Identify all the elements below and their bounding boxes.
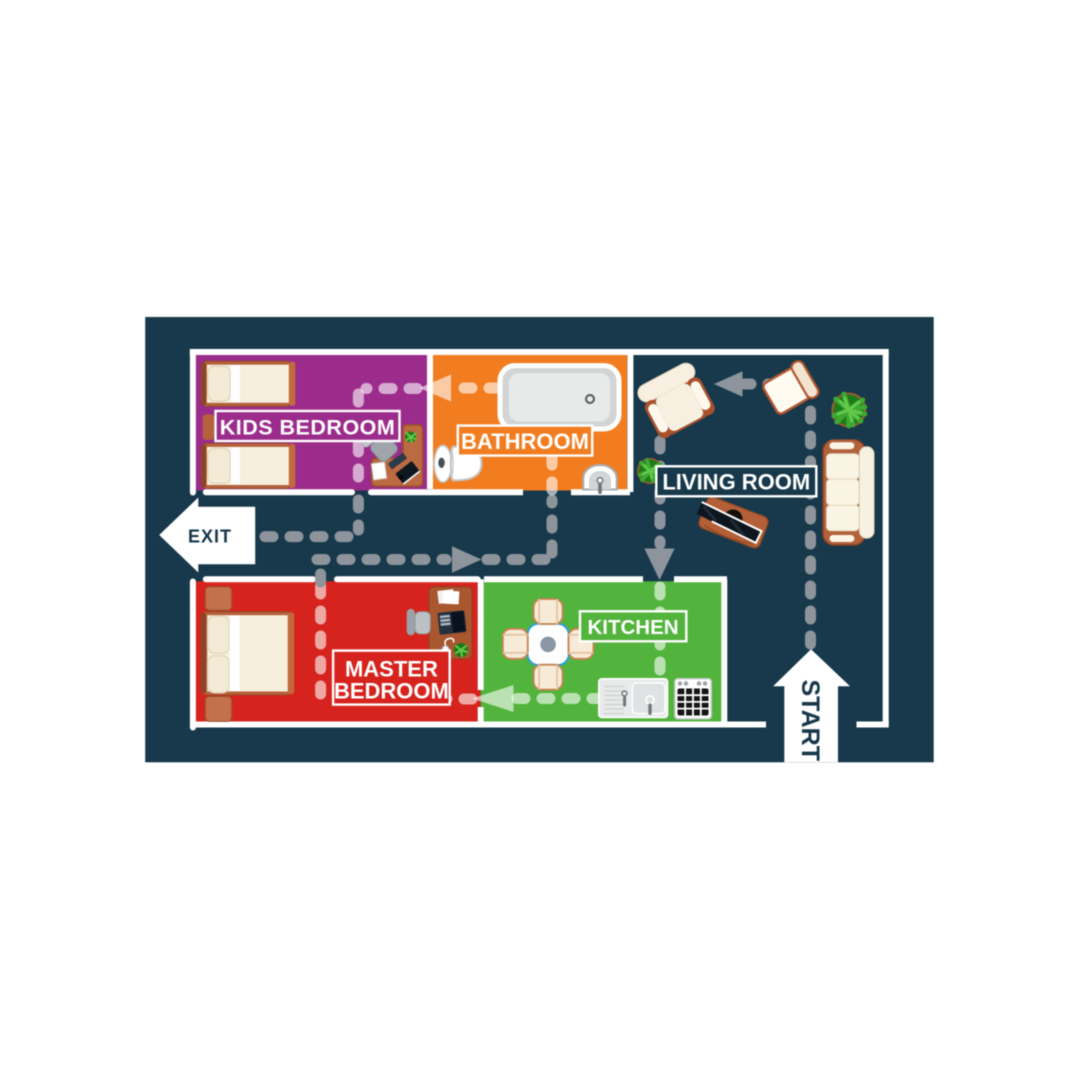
svg-text:START: START xyxy=(796,680,824,761)
svg-text:KIDS BEDROOM: KIDS BEDROOM xyxy=(220,416,396,440)
svg-text:BEDROOM: BEDROOM xyxy=(334,679,449,704)
svg-text:BATHROOM: BATHROOM xyxy=(461,429,589,454)
svg-text:EXIT: EXIT xyxy=(188,527,232,547)
svg-text:LIVING ROOM: LIVING ROOM xyxy=(662,470,810,495)
svg-text:KITCHEN: KITCHEN xyxy=(587,616,678,639)
